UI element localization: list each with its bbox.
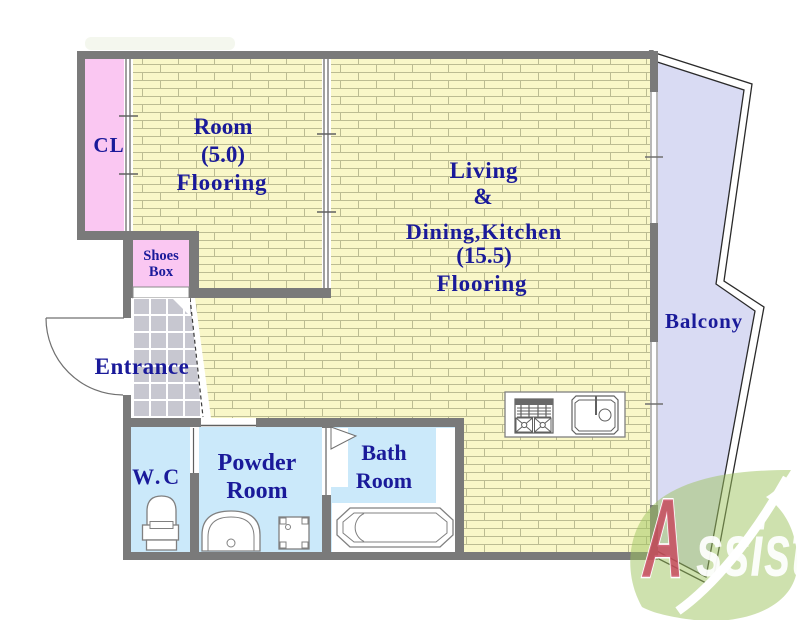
svg-text:Room: Room xyxy=(194,114,253,139)
svg-text:ssist: ssist xyxy=(696,510,800,593)
svg-text:Living: Living xyxy=(450,158,519,183)
svg-text:Dining,Kitchen: Dining,Kitchen xyxy=(406,219,562,244)
svg-text:Room: Room xyxy=(226,478,287,504)
svg-text:CL: CL xyxy=(93,133,124,157)
svg-text:&: & xyxy=(473,184,492,209)
svg-text:Flooring: Flooring xyxy=(437,271,528,296)
svg-text:Powder: Powder xyxy=(218,450,297,476)
svg-text:(15.5): (15.5) xyxy=(456,243,512,268)
svg-text:(5.0): (5.0) xyxy=(201,142,245,167)
svg-text:A: A xyxy=(642,476,684,601)
svg-text:Entrance: Entrance xyxy=(95,354,190,379)
svg-text:Shoes: Shoes xyxy=(143,248,179,264)
svg-text:Flooring: Flooring xyxy=(177,170,268,195)
svg-text:Room: Room xyxy=(356,468,412,493)
svg-text:Bath: Bath xyxy=(361,440,406,465)
svg-text:W.C: W.C xyxy=(132,464,182,489)
svg-text:Balcony: Balcony xyxy=(665,309,743,333)
svg-text:Box: Box xyxy=(149,264,174,280)
